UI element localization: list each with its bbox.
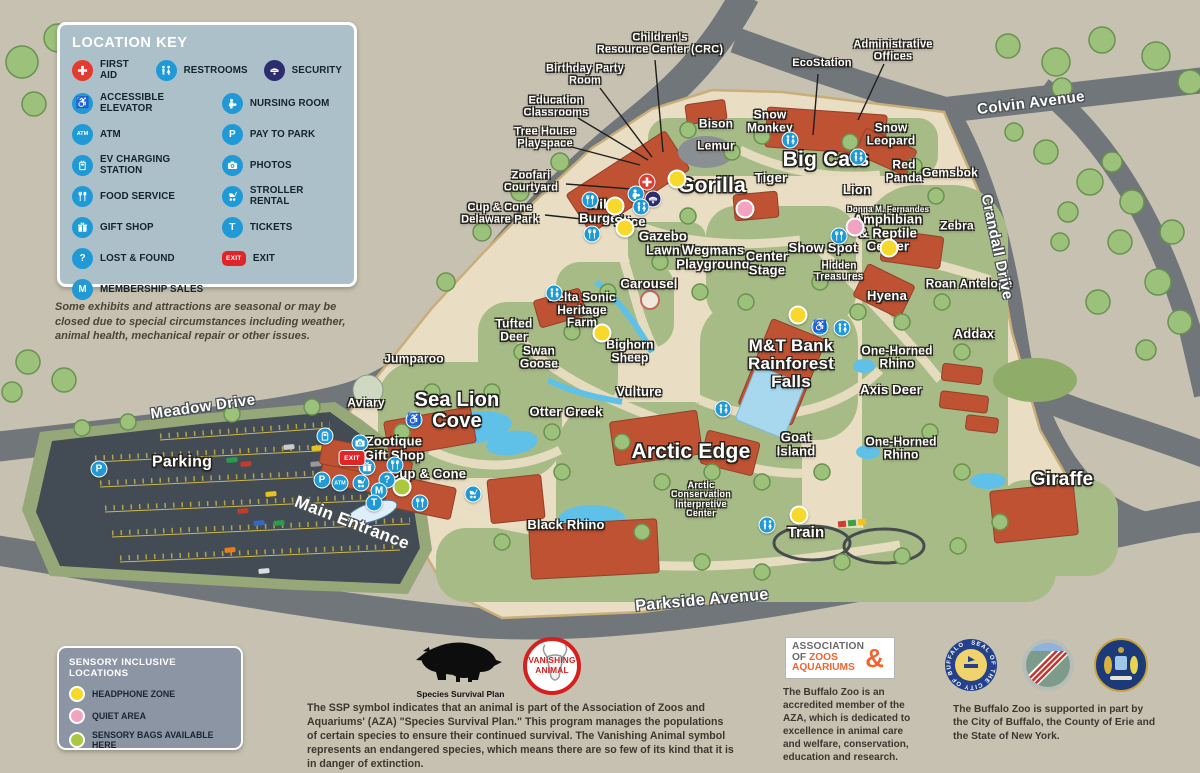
location-key-panel: LOCATION KEY FIRST AIDRESTROOMSSECURITY … (57, 22, 357, 287)
key-label: FOOD SERVICE (100, 191, 175, 202)
quiet-area-dot (736, 200, 755, 219)
key-item-tickets: TTICKETS (222, 214, 342, 240)
key-label: FIRST AID (100, 59, 140, 81)
sensory-bags-dot (69, 732, 85, 748)
location-key-row1: FIRST AIDRESTROOMSSECURITY (72, 59, 342, 81)
tickets-icon: T (222, 217, 243, 238)
food-service-marker (582, 192, 599, 209)
headphone-zone-dot (593, 324, 612, 343)
security-icon (264, 60, 285, 81)
stroller-rental-marker (465, 486, 482, 503)
key-item-membership-sales: MMEMBERSHIP SALES (72, 276, 214, 302)
headphone-zone-dot (616, 219, 635, 238)
pay-to-park-marker: P (91, 461, 108, 478)
key-label: TICKETS (250, 222, 293, 233)
ssp-description: The SSP symbol indicates that an animal … (307, 702, 735, 772)
vanishing-animal-badge: VANISHING ANIMAL (523, 637, 581, 695)
tickets-marker: T (366, 495, 383, 512)
restrooms-icon (156, 60, 177, 81)
photos-icon (222, 155, 243, 176)
key-label: SECURITY (292, 65, 342, 76)
food-service-marker (412, 495, 429, 512)
key-label: RESTROOMS (184, 65, 248, 76)
key-item-first-aid: FIRST AID (72, 59, 140, 81)
vanishing-line2: ANIMAL (535, 666, 568, 676)
key-label: LOST & FOUND (100, 253, 175, 264)
gift-shop-icon (72, 217, 93, 238)
pay-to-park-icon: P (222, 124, 243, 145)
key-item-pay-to-park: PPAY TO PARK (222, 121, 342, 147)
aza-logo: ASSOCIATION OF ZOOS AQUARIUMS & (785, 637, 895, 679)
key-item-nursing-room: NURSING ROOM (222, 90, 342, 116)
key-label: NURSING ROOM (250, 98, 330, 109)
location-key-grid: ♿ACCESSIBLE ELEVATORATMATMEV CHARGING ST… (72, 90, 342, 302)
sensory-item-quiet-area: QUIET AREA (69, 708, 231, 724)
ssp-rhino-icon (406, 634, 516, 686)
stroller-rental-icon (222, 186, 243, 207)
key-item-atm: ATMATM (72, 121, 214, 147)
food-service-marker (831, 228, 848, 245)
photos-marker (352, 435, 369, 452)
nursing-room-icon (222, 93, 243, 114)
key-item-accessible-elevator: ♿ACCESSIBLE ELEVATOR (72, 90, 214, 116)
exit-icon: EXIT (222, 251, 246, 266)
atm-icon: ATM (72, 124, 93, 145)
key-label: ATM (100, 129, 121, 140)
headphone-zone-dot (69, 686, 85, 702)
restrooms-marker (633, 199, 650, 216)
key-label: MEMBERSHIP SALES (100, 284, 203, 295)
sensory-label: HEADPHONE ZONE (92, 689, 175, 699)
erie-county-seal (1021, 638, 1075, 692)
quiet-area-dot (69, 708, 85, 724)
first-aid-icon (72, 60, 93, 81)
key-item-security: SECURITY (264, 60, 342, 81)
key-label: STROLLER RENTAL (250, 185, 342, 207)
headphone-zone-dot (880, 239, 899, 258)
headphone-zone-dot (606, 197, 625, 216)
new-york-state-seal (1094, 638, 1148, 692)
sensory-label: QUIET AREA (92, 711, 146, 721)
key-label: PAY TO PARK (250, 129, 315, 140)
restrooms-marker (850, 149, 867, 166)
aza-of: OF (792, 652, 806, 663)
key-item-food-service: FOOD SERVICE (72, 183, 214, 209)
restrooms-marker (834, 320, 851, 337)
quiet-area-dot (846, 218, 865, 237)
exit-marker: EXIT (339, 450, 366, 466)
ssp-caption: Species Survival Plan (398, 689, 523, 699)
buffalo-zoo-map: BisonSnow MonkeyLemurBig CatsTigerLionSn… (0, 0, 1200, 773)
species-survival-plan-logo: Species Survival Plan (398, 634, 523, 699)
key-item-restrooms: RESTROOMS (156, 60, 248, 81)
headphone-zone-dot (789, 306, 808, 325)
sensory-inclusive-panel: SENSORY INCLUSIVE LOCATIONS HEADPHONE ZO… (57, 646, 243, 750)
ev-charging-marker (317, 428, 334, 445)
atm-marker: ATM (332, 475, 349, 492)
support-statement: The Buffalo Zoo is supported in part by … (953, 703, 1159, 743)
accessible-elevator-marker: ♿ (406, 412, 423, 429)
lost-found-icon: ? (72, 248, 93, 269)
ev-charging-icon (72, 155, 93, 176)
restrooms-marker (546, 285, 563, 302)
restrooms-marker (782, 132, 799, 149)
aza-zoos: ZOOS (809, 652, 838, 663)
key-label: EV CHARGING STATION (100, 154, 214, 176)
accessible-elevator-marker: ♿ (812, 319, 829, 336)
headphone-zone-dot (668, 170, 687, 189)
aza-ampersand: & (865, 648, 884, 669)
aza-aquariums: AQUARIUMS (792, 663, 864, 674)
key-item-photos: PHOTOS (222, 152, 342, 178)
accessible-elevator-icon: ♿ (72, 93, 93, 114)
sensory-label: SENSORY BAGS AVAILABLE HERE (92, 730, 231, 750)
key-item-stroller-rental: STROLLER RENTAL (222, 183, 342, 209)
membership-icon: M (72, 279, 93, 300)
key-label: ACCESSIBLE ELEVATOR (100, 92, 214, 114)
seasonal-note: Some exhibits and attractions are season… (55, 300, 365, 344)
key-item-ev-charging-station: EV CHARGING STATION (72, 152, 214, 178)
food-service-marker (584, 226, 601, 243)
pay-to-park-marker: P (314, 472, 331, 489)
key-label: EXIT (253, 253, 275, 264)
restrooms-marker (715, 401, 732, 418)
food-service-icon (72, 186, 93, 207)
key-label: PHOTOS (250, 160, 292, 171)
stroller-rental-marker (353, 475, 370, 492)
key-item-exit: EXITEXIT (222, 245, 342, 271)
key-item-lost-found: ?LOST & FOUND (72, 245, 214, 271)
sensory-item-sensory-bags: SENSORY BAGS AVAILABLE HERE (69, 730, 231, 750)
sensory-item-headphone-zone: HEADPHONE ZONE (69, 686, 231, 702)
sensory-panel-title: SENSORY INCLUSIVE LOCATIONS (69, 657, 231, 679)
city-of-buffalo-seal: SEAL OF THE CITY OF BUFFALO (944, 638, 998, 692)
location-key-title: LOCATION KEY (72, 35, 342, 51)
headphone-zone-dot (790, 506, 809, 525)
key-label: GIFT SHOP (100, 222, 154, 233)
aza-description: The Buffalo Zoo is an accredited member … (783, 686, 915, 764)
key-item-gift-shop: GIFT SHOP (72, 214, 214, 240)
sensory-items: HEADPHONE ZONEQUIET AREASENSORY BAGS AVA… (69, 686, 231, 750)
restrooms-marker (759, 517, 776, 534)
